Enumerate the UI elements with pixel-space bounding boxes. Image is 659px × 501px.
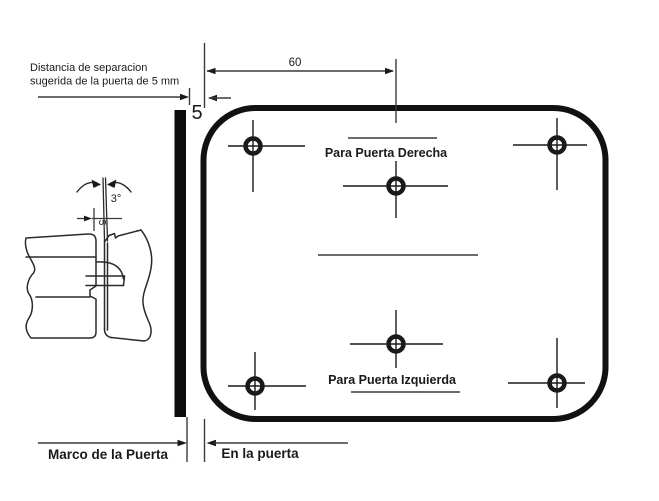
angle-text: 3° — [111, 193, 122, 205]
diagram-canvas: Distancia de separacion sugerida de la p… — [0, 0, 659, 501]
tilted-door-lines — [103, 178, 108, 241]
door-frame-label: Marco de la Puerta — [48, 447, 169, 462]
door-frame-bar — [175, 110, 187, 417]
installation-diagram: Distancia de separacion sugerida de la p… — [0, 0, 659, 501]
detail-gap-text: 5 — [96, 220, 107, 226]
screw-hole-bottom-right — [508, 338, 585, 408]
cross-section-detail — [26, 178, 152, 341]
rotation-arrowhead-right — [107, 180, 117, 189]
gap-dimension-5 — [208, 95, 231, 101]
screw-holes — [228, 118, 587, 410]
screw-hole-bottom-center — [350, 310, 443, 368]
on-door-label: En la puerta — [221, 446, 299, 461]
rotation-arrowhead-left — [92, 180, 102, 189]
right-door-label: Para Puerta Derecha — [325, 146, 448, 160]
gap-value-text: 5 — [191, 102, 202, 124]
screw-hole-bottom-left — [228, 352, 306, 410]
door-frame-arrow — [38, 440, 187, 447]
gap-leader-arrow — [38, 94, 189, 100]
gap-note-line2: sugerida de la puerta de 5 mm — [30, 76, 179, 88]
screw-hole-top-left — [228, 120, 305, 192]
rotation-arrows — [77, 182, 131, 192]
top-width-text: 60 — [289, 57, 302, 69]
screw-hole-top-right — [513, 118, 587, 190]
left-door-label: Para Puerta Izquierda — [328, 373, 457, 387]
screw-hole-top-center — [343, 161, 448, 218]
gap-note-line1: Distancia de separacion — [30, 62, 147, 74]
